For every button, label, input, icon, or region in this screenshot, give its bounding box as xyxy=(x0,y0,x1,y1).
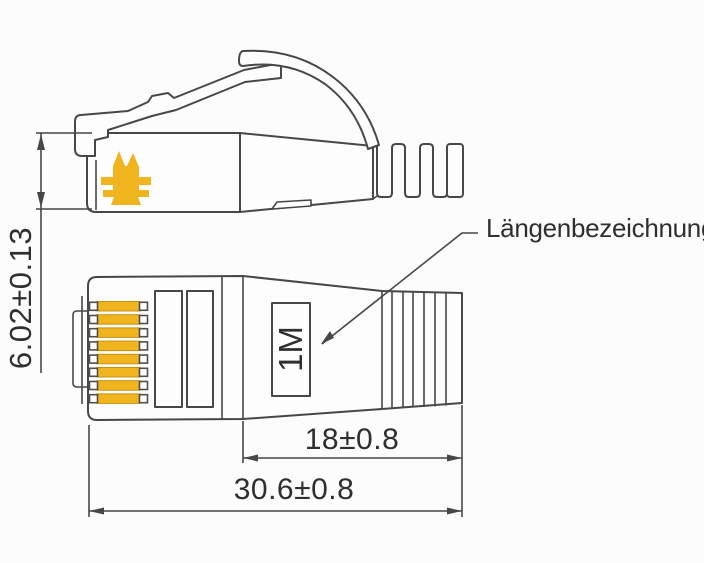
side-boot-tab xyxy=(272,200,311,209)
pin-contact-bar xyxy=(97,394,140,404)
side-view xyxy=(75,51,463,212)
dim-boot-length-label: 18±0.8 xyxy=(282,423,422,457)
pin-contact-bar xyxy=(97,328,140,338)
pin-pad-right xyxy=(140,382,148,390)
arrow-down-icon xyxy=(37,192,45,208)
bottom-window-2 xyxy=(187,291,213,407)
pin-pad-right xyxy=(140,368,148,376)
pin-contact-bar xyxy=(97,368,140,378)
pin-contact-bar xyxy=(97,302,140,312)
pin-pad-right xyxy=(140,342,148,350)
pin-pad-left xyxy=(90,368,98,376)
annotation-label: Längenbezeichnung xyxy=(486,213,704,244)
pin-contact-bar xyxy=(97,381,140,391)
pin-pad-left xyxy=(90,316,98,324)
pin-contact-bar xyxy=(97,341,140,351)
bottom-window-1 xyxy=(155,291,182,407)
bottom-view xyxy=(73,276,462,420)
arrow-right-icon xyxy=(447,508,462,515)
pin-pad-left xyxy=(90,395,98,403)
pin-pad-left xyxy=(90,342,98,350)
length-marking-text: 1M xyxy=(272,309,310,389)
pin-pad-right xyxy=(140,395,148,403)
pin-pad-right xyxy=(140,316,148,324)
side-plug-body xyxy=(87,133,240,212)
arrow-left-icon xyxy=(243,455,258,462)
technical-drawing-canvas: 6.02±0.13 18±0.8 30.6±0.8 1M Längenbezei… xyxy=(0,0,704,563)
arrow-up-icon xyxy=(37,134,45,150)
arrow-right-icon xyxy=(447,455,462,462)
pin-pad-left xyxy=(90,329,98,337)
pin-pad-right xyxy=(140,355,148,363)
pin-contact-bar xyxy=(97,354,140,364)
side-accordion-ribs xyxy=(373,144,447,197)
pin-contact-bar xyxy=(97,315,140,325)
pin-pad-left xyxy=(90,382,98,390)
pin-pad-right xyxy=(140,302,148,310)
arrow-left-icon xyxy=(89,508,104,515)
pin-pad-left xyxy=(90,302,98,310)
pin-pad-right xyxy=(140,329,148,337)
side-accordion-endcap xyxy=(447,144,463,197)
pin-pad-left xyxy=(90,355,98,363)
dim-plug-height-label: 6.02±0.13 xyxy=(4,222,38,374)
bottom-latch-bracket xyxy=(73,311,88,387)
dim-total-length-label: 30.6±0.8 xyxy=(204,473,384,507)
